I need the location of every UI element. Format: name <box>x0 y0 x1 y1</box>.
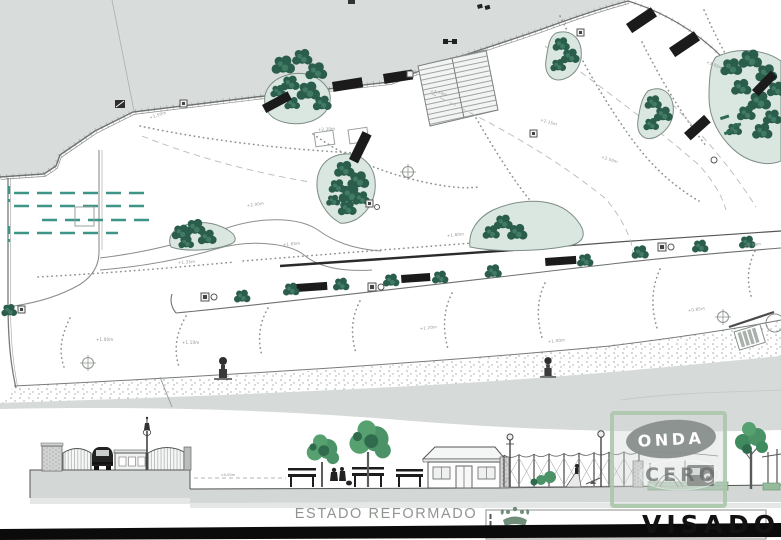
path-edges <box>14 150 781 313</box>
tree-icon <box>349 420 390 458</box>
masonry-pillar <box>41 443 63 471</box>
drawing-page: +1.50m +2.00m +2.30m +1.80m +1.65m +1.35… <box>0 0 781 540</box>
spot-elevation-label: +1.50m <box>149 110 167 120</box>
car <box>92 447 113 470</box>
fence-post <box>184 447 191 470</box>
teal-dashed-lines <box>9 186 152 242</box>
watermark-line1: ONDA <box>637 428 705 450</box>
tall-tree <box>735 422 768 489</box>
section-level-label: ±0.00m <box>221 473 236 477</box>
playground-slide <box>566 464 600 487</box>
spot-elevation-label: +1.10m <box>182 340 199 345</box>
planter-outline <box>75 207 94 226</box>
spot-elevation-label: +1.90m <box>744 241 762 248</box>
survey-point-icons <box>80 164 731 371</box>
spot-elevation-label: +2.15m <box>540 117 558 127</box>
bench-icon <box>396 469 423 487</box>
spot-elevation-label: +1.80m <box>447 231 465 238</box>
bench-icon <box>288 468 316 487</box>
kiosk-building <box>423 447 505 488</box>
wall-mark-icon <box>348 0 355 4</box>
tree-icon <box>307 434 339 464</box>
onda-cero-watermark: ONDA CERO <box>612 413 725 506</box>
spot-elevation-label: +1.20m <box>420 324 438 331</box>
spot-elevation-label: +1.35m <box>178 259 196 265</box>
drawing-caption: ESTADO REFORMADO <box>295 506 477 522</box>
spot-elevation-label: +2.50m <box>601 154 619 164</box>
low-wall <box>114 450 147 470</box>
watermark-line2: CERO <box>645 464 719 486</box>
arched-fence <box>148 448 186 471</box>
stamp-title: VISADO <box>642 510 780 539</box>
spot-elevation-label: +1.00m <box>548 337 566 344</box>
beach-band <box>0 178 781 432</box>
planter-outline <box>314 130 335 147</box>
spot-elevation-label: +0.85m <box>687 306 705 313</box>
site-plan-sheet: +1.50m +2.00m +2.30m +1.80m +1.65m +1.35… <box>0 0 781 540</box>
spot-elevation-label: +1.65m <box>283 241 301 247</box>
arched-fence <box>63 449 91 471</box>
spot-elevation-label: +1.00m <box>96 337 113 342</box>
spot-elevation-label: +2.00m <box>246 201 264 208</box>
right-fence <box>762 449 781 490</box>
people-silhouettes <box>330 467 352 485</box>
drain-icon <box>115 100 125 108</box>
plan-view: +1.50m +2.00m +2.30m +1.80m +1.65m +1.35… <box>0 0 781 432</box>
